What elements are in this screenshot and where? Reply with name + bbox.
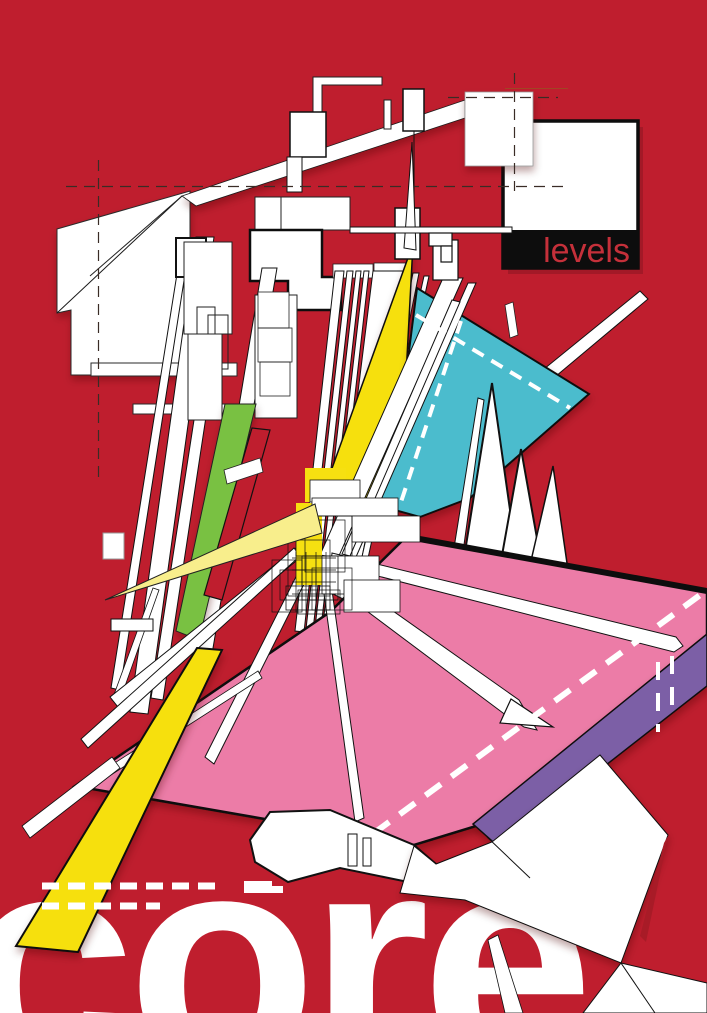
svg-text:levels: levels <box>543 232 630 270</box>
